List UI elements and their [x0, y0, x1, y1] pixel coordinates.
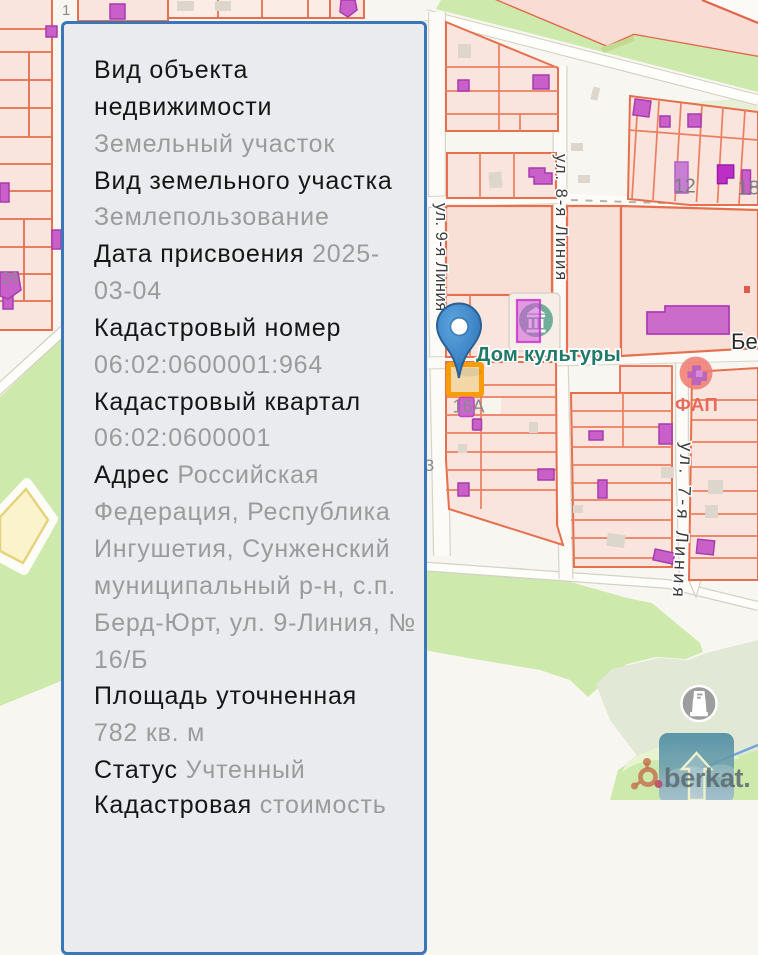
- svg-text:berkat.: berkat.: [664, 763, 750, 793]
- svg-text:ФАП: ФАП: [675, 394, 718, 415]
- svg-text:Бе: Бе: [731, 329, 758, 354]
- svg-text:18: 18: [738, 178, 758, 200]
- svg-text:26: 26: [1, 270, 19, 287]
- svg-text:16А: 16А: [453, 397, 485, 417]
- svg-text:1: 1: [62, 2, 70, 19]
- svg-text:ул. 8-я Линия: ул. 8-я Линия: [552, 154, 570, 282]
- svg-text:12: 12: [674, 176, 696, 198]
- svg-text:Дом культуры: Дом культуры: [476, 344, 621, 366]
- svg-text:ул. 9-я Линия: ул. 9-я Линия: [432, 203, 450, 312]
